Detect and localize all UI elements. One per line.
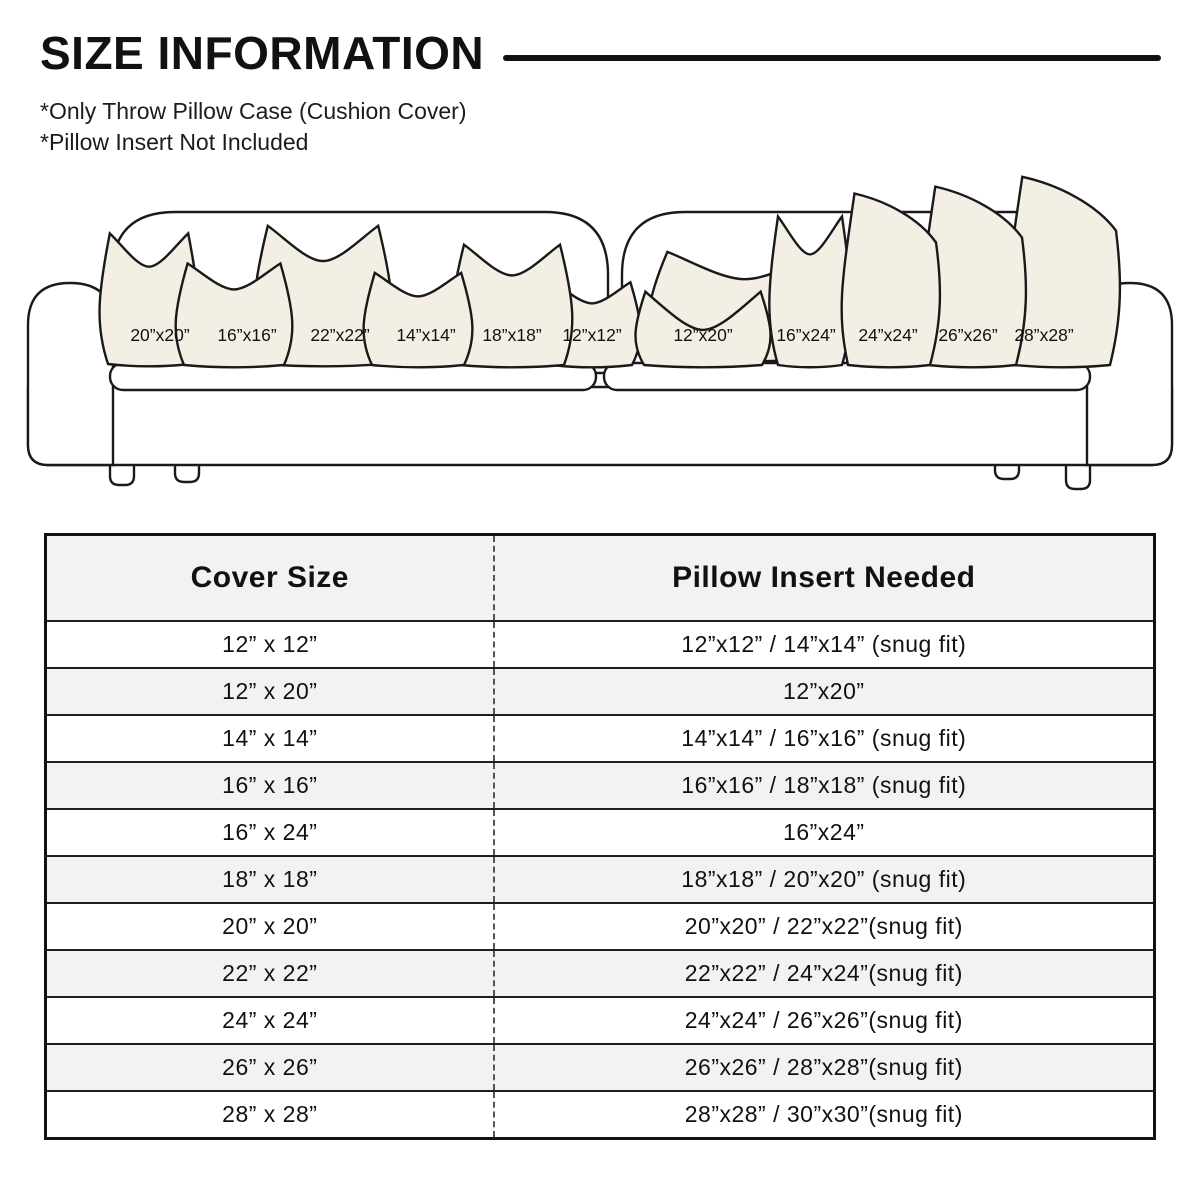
size-table-body: 12” x 12” 12”x12” / 14”x14” (snug fit) 1… [46,621,1155,1139]
table-row: 12” x 20” 12”x20” [46,668,1155,715]
cover-size-cell: 22” x 22” [46,950,494,997]
cover-size-cell: 24” x 24” [46,997,494,1044]
pillow-size-label: 28”x28” [1014,325,1074,345]
cover-size-cell: 26” x 26” [46,1044,494,1091]
table-row: 26” x 26” 26”x26” / 28”x28”(snug fit) [46,1044,1155,1091]
insert-needed-cell: 14”x14” / 16”x16” (snug fit) [494,715,1155,762]
pillow-size-label: 24”x24” [858,325,918,345]
cover-size-cell: 12” x 20” [46,668,494,715]
insert-needed-cell: 16”x24” [494,809,1155,856]
pillow-size-label: 26”x26” [938,325,998,345]
insert-needed-cell: 16”x16” / 18”x18” (snug fit) [494,762,1155,809]
cover-size-cell: 20” x 20” [46,903,494,950]
table-row: 12” x 12” 12”x12” / 14”x14” (snug fit) [46,621,1155,668]
insert-needed-cell: 26”x26” / 28”x28”(snug fit) [494,1044,1155,1091]
pillow-size-label: 22”x22” [310,325,370,345]
table-row: 22” x 22” 22”x22” / 24”x24”(snug fit) [46,950,1155,997]
cover-size-cell: 16” x 16” [46,762,494,809]
disclaimer-notes: *Only Throw Pillow Case (Cushion Cover) … [40,96,467,158]
pillow-size-label: 12”x12” [562,325,622,345]
table-row: 20” x 20” 20”x20” / 22”x22”(snug fit) [46,903,1155,950]
table-row: 18” x 18” 18”x18” / 20”x20” (snug fit) [46,856,1155,903]
table-row: 28” x 28” 28”x28” / 30”x30”(snug fit) [46,1091,1155,1139]
size-table-header-row: Cover Size Pillow Insert Needed [46,535,1155,622]
col-header-cover-size: Cover Size [46,535,494,622]
table-row: 24” x 24” 24”x24” / 26”x26”(snug fit) [46,997,1155,1044]
sofa-illustration: 20”x20” 16”x16” 22”x22” 14”x14” 18”x18” … [0,170,1200,505]
pillow-size-label: 16”x16” [217,325,277,345]
insert-needed-cell: 20”x20” / 22”x22”(snug fit) [494,903,1155,950]
insert-needed-cell: 28”x28” / 30”x30”(snug fit) [494,1091,1155,1139]
col-header-pillow-insert-needed: Pillow Insert Needed [494,535,1155,622]
table-row: 16” x 24” 16”x24” [46,809,1155,856]
pillow-size-label: 16”x24” [776,325,836,345]
cover-size-cell: 16” x 24” [46,809,494,856]
insert-needed-cell: 24”x24” / 26”x26”(snug fit) [494,997,1155,1044]
note-cover-only: *Only Throw Pillow Case (Cushion Cover) [40,96,467,127]
sofa-base [28,387,1172,465]
pillow-size-label: 12”x20” [673,325,733,345]
table-row: 14” x 14” 14”x14” / 16”x16” (snug fit) [46,715,1155,762]
size-table: Cover Size Pillow Insert Needed 12” x 12… [44,533,1156,1140]
cover-size-cell: 14” x 14” [46,715,494,762]
table-row: 16” x 16” 16”x16” / 18”x18” (snug fit) [46,762,1155,809]
insert-needed-cell: 22”x22” / 24”x24”(snug fit) [494,950,1155,997]
insert-needed-cell: 12”x20” [494,668,1155,715]
cover-size-cell: 18” x 18” [46,856,494,903]
pillow-size-label: 18”x18” [482,325,542,345]
title-rule [503,55,1161,61]
cover-size-cell: 12” x 12” [46,621,494,668]
pillow-size-label: 20”x20” [130,325,190,345]
size-information-page: SIZE INFORMATION *Only Throw Pillow Case… [0,0,1200,1200]
insert-needed-cell: 18”x18” / 20”x20” (snug fit) [494,856,1155,903]
note-insert-not-included: *Pillow Insert Not Included [40,127,467,158]
insert-needed-cell: 12”x12” / 14”x14” (snug fit) [494,621,1155,668]
page-title: SIZE INFORMATION [40,26,484,80]
pillow-size-label: 14”x14” [396,325,456,345]
cover-size-cell: 28” x 28” [46,1091,494,1139]
